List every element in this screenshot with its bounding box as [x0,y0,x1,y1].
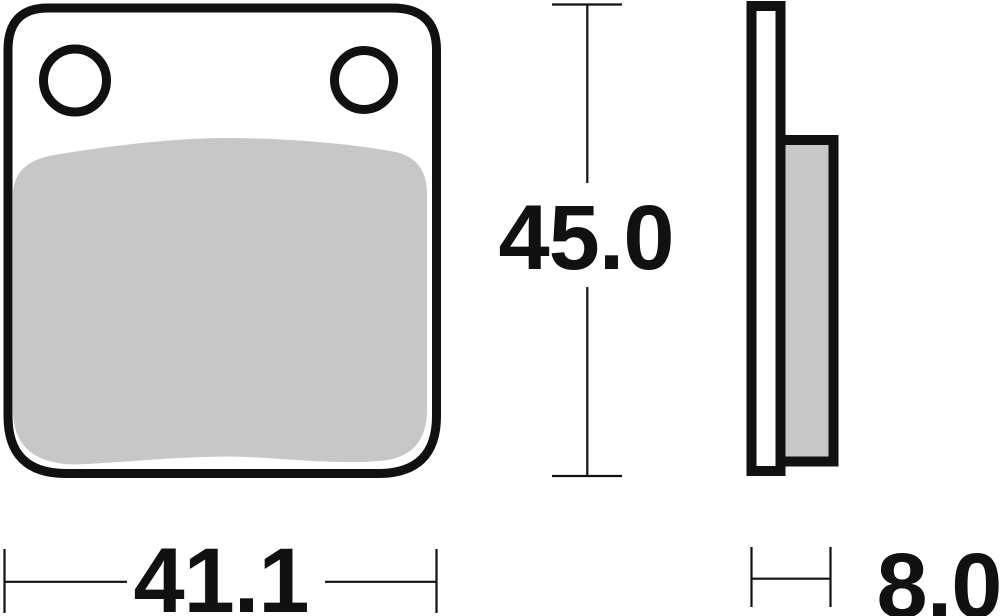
width-dimension-label: 41.1 [71,535,371,616]
mounting-hole-right [335,51,394,110]
front-view [8,8,437,474]
front-view-friction-material [13,138,427,465]
side-view-backing-plate [752,6,781,471]
brake-pad-technical-drawing: 45.0 41.1 8.0 [0,0,1000,616]
technical-drawing-svg [0,0,1000,616]
height-dimension-label: 45.0 [436,192,736,284]
side-view-friction-material [780,140,834,462]
mounting-hole-left [44,49,107,112]
side-view [752,6,834,471]
thickness-dimension-label: 8.0 [789,540,1000,616]
